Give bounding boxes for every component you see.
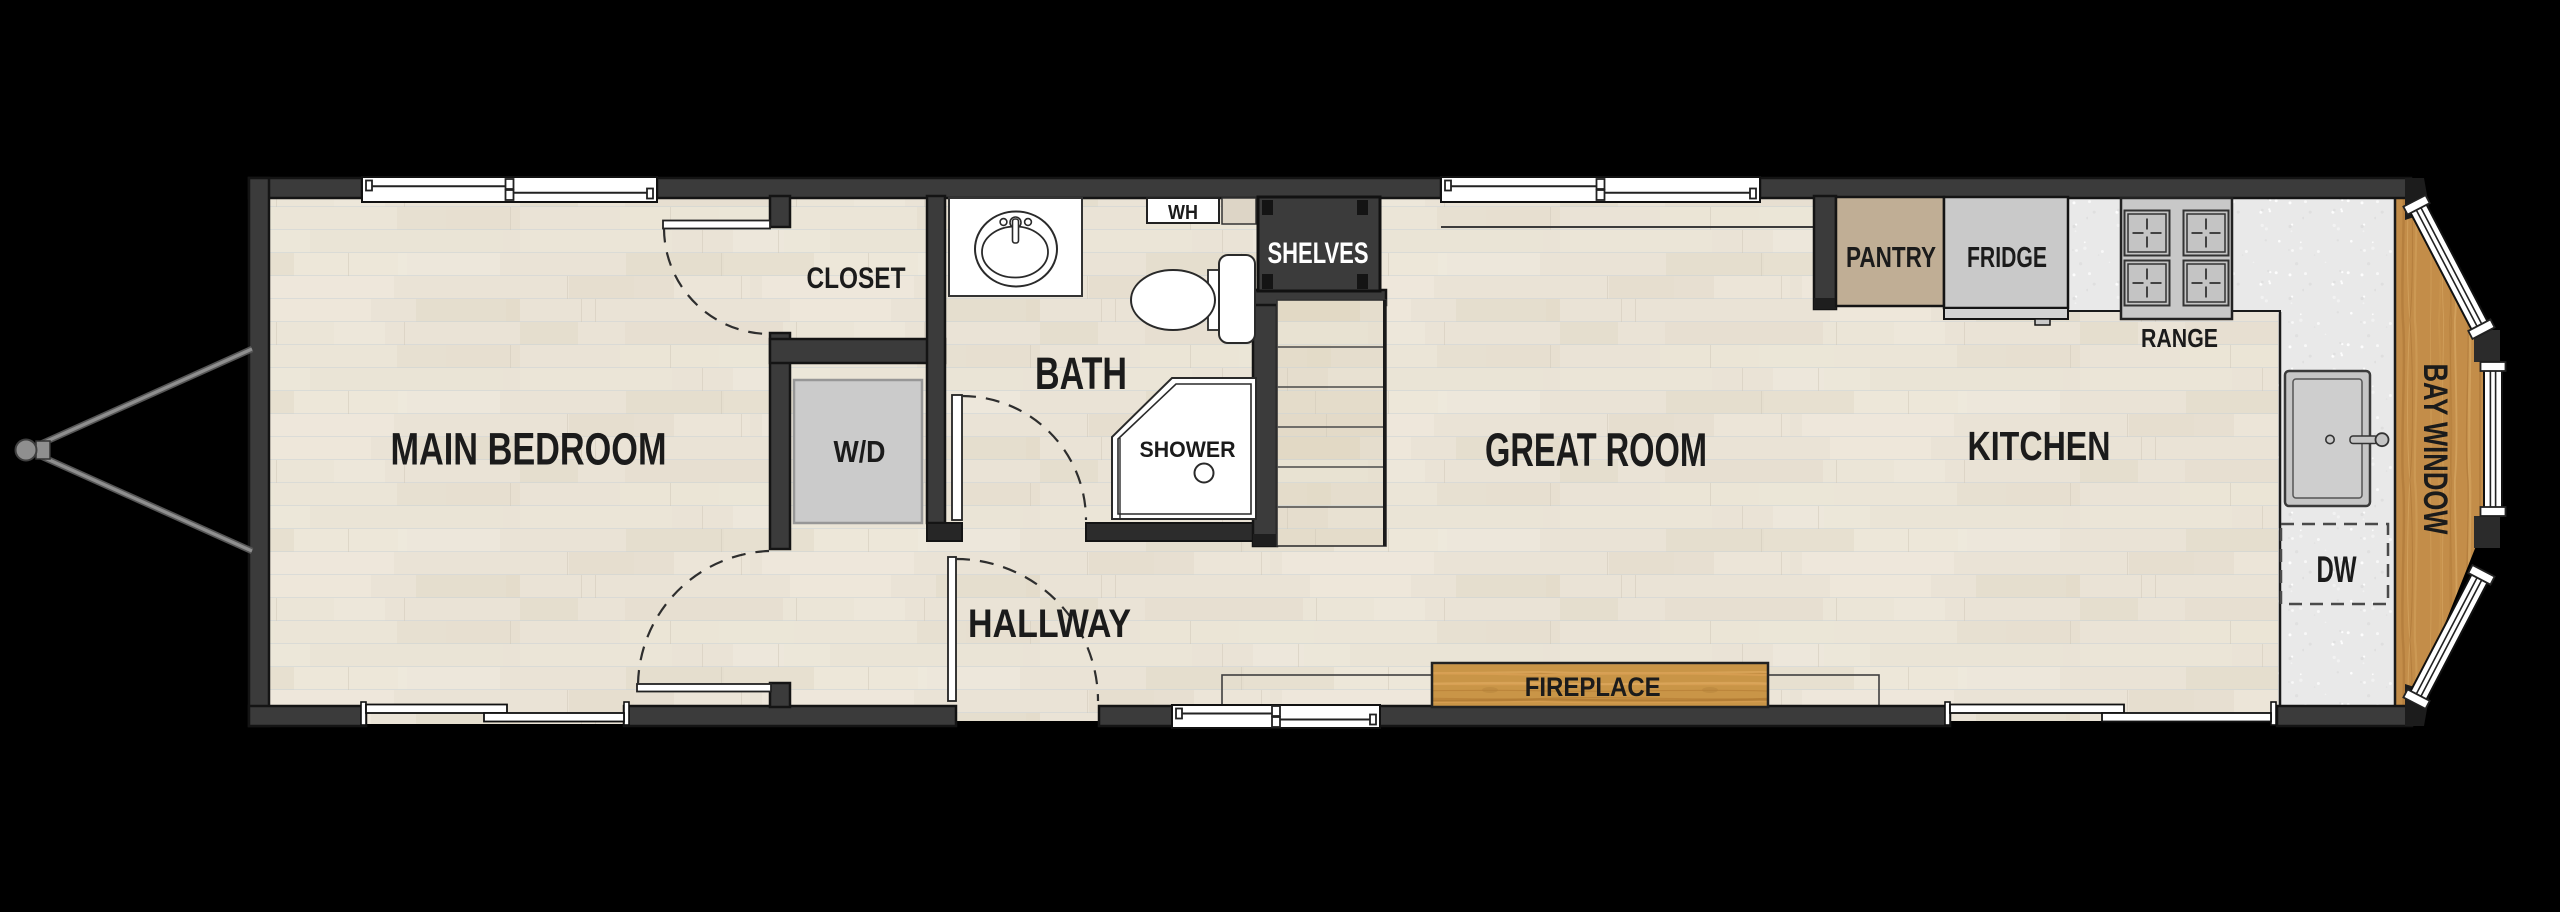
svg-text:HALLWAY: HALLWAY (968, 602, 1131, 646)
svg-text:PANTRY: PANTRY (1846, 242, 1936, 274)
svg-text:GREAT ROOM: GREAT ROOM (1485, 423, 1707, 476)
svg-text:FRIDGE: FRIDGE (1967, 242, 2047, 274)
svg-text:WH: WH (1168, 202, 1198, 224)
svg-text:DW: DW (2317, 549, 2357, 590)
svg-text:W/D: W/D (834, 434, 886, 469)
svg-text:KITCHEN: KITCHEN (1968, 423, 2111, 469)
svg-text:SHELVES: SHELVES (1268, 237, 1369, 270)
svg-text:MAIN BEDROOM: MAIN BEDROOM (391, 424, 667, 475)
svg-text:FIREPLACE: FIREPLACE (1525, 672, 1661, 702)
svg-text:SHOWER: SHOWER (1140, 437, 1236, 462)
svg-text:BAY WINDOW: BAY WINDOW (2416, 364, 2454, 536)
svg-text:RANGE: RANGE (2141, 323, 2218, 353)
svg-text:BATH: BATH (1035, 348, 1127, 399)
svg-text:CLOSET: CLOSET (807, 262, 906, 295)
